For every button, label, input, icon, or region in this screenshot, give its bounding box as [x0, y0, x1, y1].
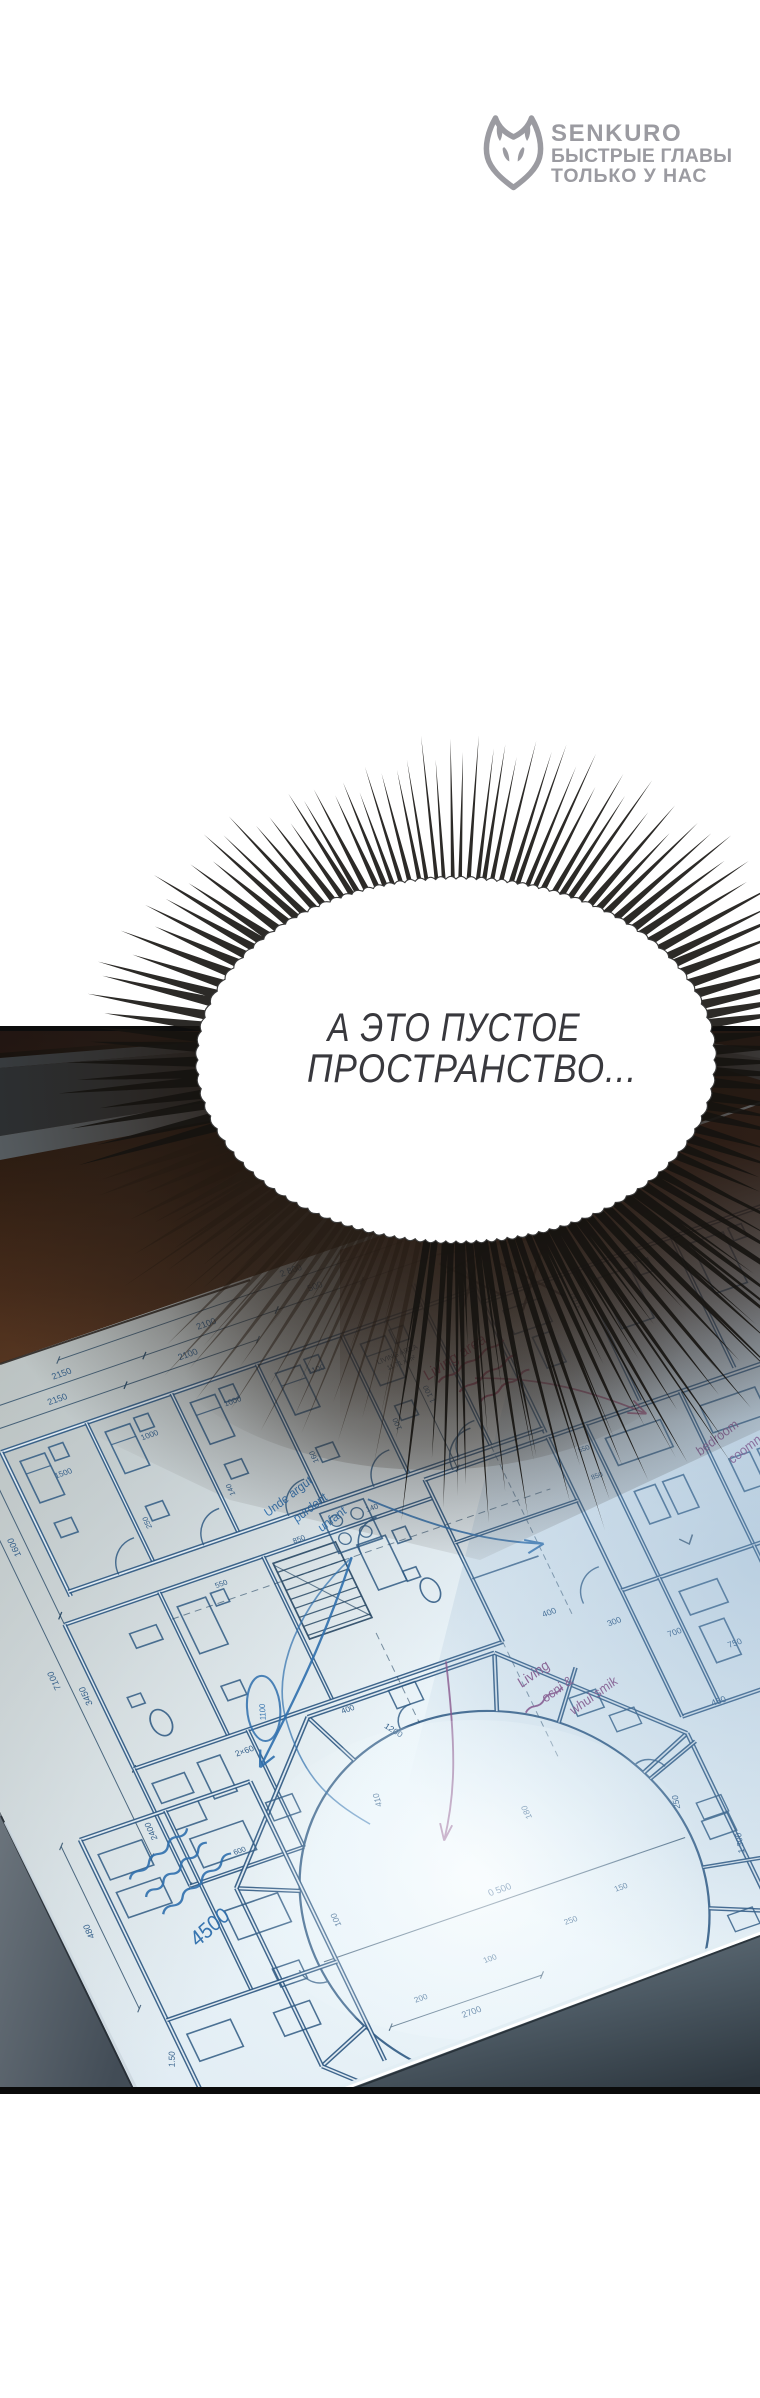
- svg-text:1100: 1100: [258, 1703, 268, 1720]
- svg-text:БЫСТРЫЕ ГЛАВЫ: БЫСТРЫЕ ГЛАВЫ: [551, 146, 732, 167]
- svg-text:А ЭТО ПУСТОЕ: А ЭТО ПУСТОЕ: [326, 1006, 581, 1050]
- svg-text:SENKURO: SENKURO: [551, 120, 682, 147]
- svg-text:ТОЛЬКО У НАС: ТОЛЬКО У НАС: [551, 165, 707, 187]
- svg-text:1.50: 1.50: [166, 2051, 177, 2068]
- svg-text:ПРОСТРАНСТВО...: ПРОСТРАНСТВО...: [307, 1047, 637, 1091]
